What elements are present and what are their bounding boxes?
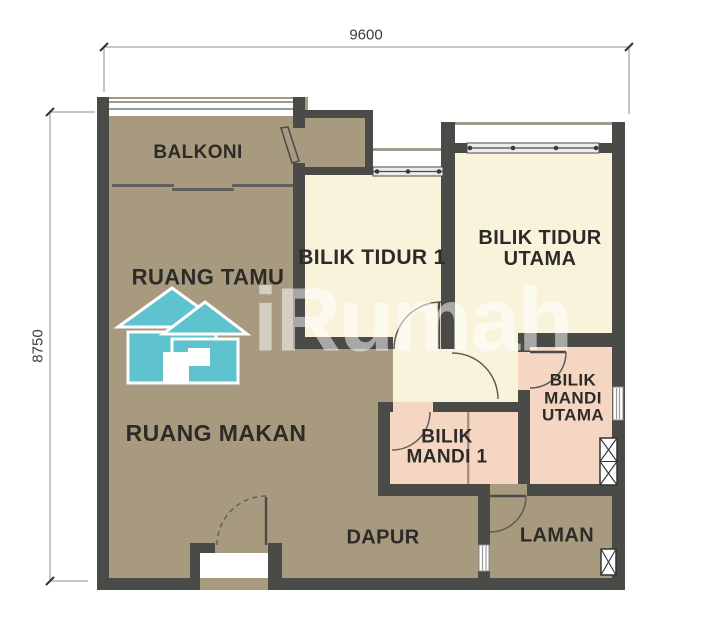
- wall-bottom-right: [268, 578, 625, 590]
- wall-laman-left-upper: [478, 496, 490, 545]
- dimension-height: 8750: [30, 329, 47, 362]
- room-label-ruang-makan: RUANG MAKAN: [126, 422, 307, 446]
- room-label-bilik-mandi-1: BILIK MANDI 1: [407, 427, 488, 467]
- wall-entry-left: [190, 543, 200, 590]
- wall-bottom-left: [97, 578, 190, 590]
- window-bmu-right: [613, 387, 623, 420]
- wall-right: [612, 122, 625, 590]
- wall-bt1-btu: [441, 122, 455, 349]
- wall-bt1-bottom: [293, 337, 393, 349]
- room-label-dapur: DAPUR: [346, 528, 419, 549]
- room-label-balkoni: BALKONI: [153, 143, 242, 163]
- wall-laman-left-lower: [478, 571, 490, 578]
- window-bilik-tidur-1: [373, 167, 443, 176]
- wall-ledge-bottom: [305, 167, 373, 175]
- planter-strip-1: [373, 150, 443, 167]
- wall-bm1-left: [378, 402, 390, 496]
- room-label-bilik-tidur-utama: BILIK TIDUR UTAMA: [478, 228, 601, 270]
- room-label-laman: LAMAN: [520, 526, 594, 547]
- wall-bm1-top-right: [433, 402, 530, 412]
- planter-strip-2: [455, 124, 612, 143]
- wall-ledge-top: [297, 110, 373, 118]
- floor-plan-canvas: 9600 8750 BALKONI RUANG TAMU BILIK TIDUR…: [0, 0, 704, 632]
- entry-recess: [200, 553, 268, 578]
- room-label-bilik-mandi-utama: BILIK MANDI UTAMA: [542, 371, 604, 424]
- wall-btu-bottom: [518, 333, 612, 347]
- louvre-window-small: [601, 549, 616, 575]
- wall-laman-top: [527, 484, 612, 496]
- wall-entry-right: [268, 543, 282, 590]
- wall-btu-window-block-left: [455, 143, 467, 153]
- room-label-ruang-tamu: RUANG TAMU: [132, 267, 285, 290]
- wall-bmu-left-upper: [518, 347, 530, 352]
- dimension-width: 9600: [349, 27, 382, 44]
- wall-bath-bottom-left: [378, 484, 490, 496]
- window-bilik-tidur-utama: [467, 143, 599, 153]
- room-label-bilik-tidur-1: BILIK TIDUR 1: [298, 247, 446, 269]
- floor-hall: [393, 349, 455, 402]
- louvre-window-tall: [600, 438, 617, 485]
- window-laman-left: [479, 545, 489, 571]
- wall-entry-stub: [200, 543, 215, 553]
- wall-ledge-right: [365, 110, 373, 175]
- wall-left: [97, 97, 109, 590]
- wall-btu-window-block-right: [599, 143, 612, 153]
